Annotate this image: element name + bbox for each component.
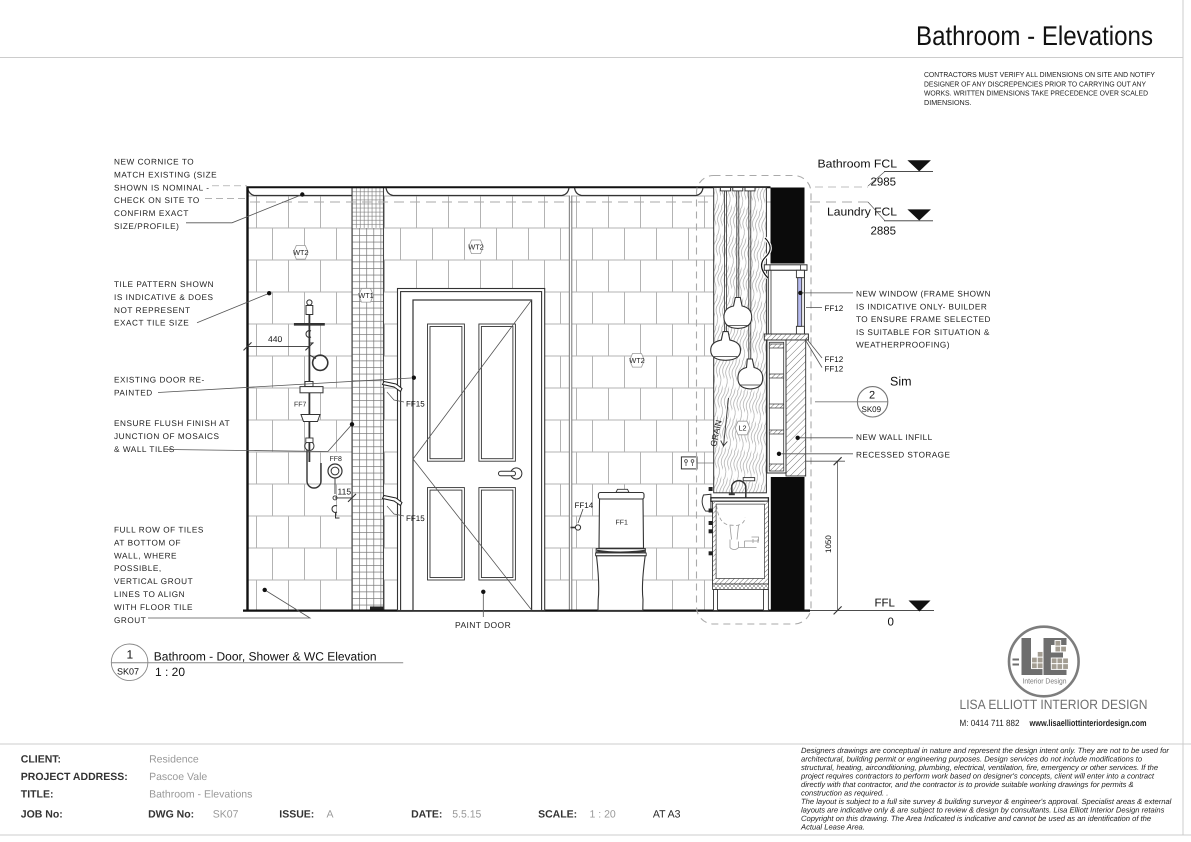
svg-text:Bathroom FCL: Bathroom FCL [818,159,898,171]
svg-text:NEW CORNICE TO: NEW CORNICE TO [114,158,194,167]
svg-text:POSSIBLE,: POSSIBLE, [114,564,162,573]
svg-text:PAINTED: PAINTED [114,388,153,397]
svg-text:Actual Lease Area.: Actual Lease Area. [800,823,865,832]
svg-text:www.lisaelliottinteriordesign.: www.lisaelliottinteriordesign.com [1029,718,1147,728]
svg-text:RECESSED STORAGE: RECESSED STORAGE [856,451,950,460]
svg-text:DIMENSIONS.: DIMENSIONS. [924,98,972,107]
svg-text:ISSUE:: ISSUE: [279,809,314,821]
svg-text:GROUT: GROUT [114,616,146,625]
svg-text:1: 1 [127,648,134,662]
svg-text:1050: 1050 [824,535,833,553]
svg-text:TITLE:: TITLE: [21,789,54,801]
svg-text:2: 2 [869,390,875,402]
svg-text:M: 0414 711 882: M: 0414 711 882 [960,718,1020,728]
svg-text:JOB No:: JOB No: [21,809,63,821]
svg-text:& WALL TILES: & WALL TILES [114,445,175,454]
svg-text:FULL ROW OF TILES: FULL ROW OF TILES [114,526,204,535]
svg-text:FFL: FFL [875,598,896,610]
svg-text:FF14: FF14 [575,501,594,510]
svg-text:Pascoe Vale: Pascoe Vale [149,771,207,783]
svg-text:FF12: FF12 [825,355,844,364]
svg-text:IS INDICATIVE & DOES: IS INDICATIVE & DOES [114,293,214,302]
svg-text:WALL, WHERE: WALL, WHERE [114,551,177,560]
svg-text:1 : 20: 1 : 20 [590,809,616,821]
svg-text:PROJECT ADDRESS:: PROJECT ADDRESS: [21,771,128,783]
svg-text:NEW WINDOW (FRAME SHOWN: NEW WINDOW (FRAME SHOWN [856,290,991,299]
svg-text:IS SUITABLE FOR SITUATION &: IS SUITABLE FOR SITUATION & [856,328,990,337]
svg-text:IS INDICATIVE ONLY- BUILDER: IS INDICATIVE ONLY- BUILDER [856,302,987,311]
svg-text:Interior Design: Interior Design [1023,677,1067,686]
svg-text:EXACT TILE SIZE: EXACT TILE SIZE [114,319,189,328]
svg-text:JUNCTION OF MOSAICS: JUNCTION OF MOSAICS [114,432,220,441]
svg-text:SHOWN IS NOMINAL -: SHOWN IS NOMINAL - [114,183,210,192]
svg-text:FF8: FF8 [330,456,343,463]
svg-text:NEW WALL INFILL: NEW WALL INFILL [856,433,933,442]
svg-text:WITH FLOOR TILE: WITH FLOOR TILE [114,603,193,612]
svg-text:LINES TO ALIGN: LINES TO ALIGN [114,590,185,599]
svg-text:2885: 2885 [871,226,897,238]
svg-text:DESIGNER OF ANY DISCREPENCIES: DESIGNER OF ANY DISCREPENCIES PRIOR TO C… [924,79,1146,88]
svg-text:FF12: FF12 [825,364,844,373]
svg-text:A: A [327,809,334,821]
svg-text:ENSURE FLUSH FINISH AT: ENSURE FLUSH FINISH AT [114,419,230,428]
svg-text:VERTICAL GROUT: VERTICAL GROUT [114,577,193,586]
svg-text:EXISTING DOOR RE-: EXISTING DOOR RE- [114,376,205,385]
svg-text:FF15: FF15 [406,514,425,523]
svg-text:MATCH EXISTING (SIZE: MATCH EXISTING (SIZE [114,170,217,179]
svg-text:LISA ELLIOTT INTERIOR DESIGN: LISA ELLIOTT INTERIOR DESIGN [960,697,1148,712]
svg-text:WT1: WT1 [358,291,373,300]
svg-text:AT BOTTOM OF: AT BOTTOM OF [114,538,181,547]
svg-text:5.5.15: 5.5.15 [452,809,481,821]
svg-text:DWG No:: DWG No: [148,809,194,821]
svg-text:WORKS. WRITTEN DIMENSIONS TAK: WORKS. WRITTEN DIMENSIONS TAKE PRECEDENC… [924,89,1148,98]
svg-text:SK09: SK09 [862,405,882,414]
svg-text:Laundry FCL: Laundry FCL [827,207,898,219]
svg-text:SCALE:: SCALE: [538,809,577,821]
svg-text:TILE PATTERN SHOWN: TILE PATTERN SHOWN [114,280,214,289]
svg-text:SIZE/PROFILE): SIZE/PROFILE) [114,222,179,231]
svg-text:NOT REPRESENT: NOT REPRESENT [114,306,191,315]
svg-text:FF7: FF7 [294,402,307,409]
svg-text:1 : 20: 1 : 20 [155,665,185,679]
svg-text:2985: 2985 [871,177,897,189]
svg-text:PAINT DOOR: PAINT DOOR [455,620,511,630]
svg-text:440: 440 [268,334,282,344]
svg-text:Residence: Residence [149,754,199,766]
svg-text:WT2: WT2 [629,356,644,365]
svg-text:115: 115 [338,487,352,497]
svg-text:WEATHERPROOFING): WEATHERPROOFING) [856,341,950,350]
svg-text:FF15: FF15 [406,400,425,409]
svg-text:CLIENT:: CLIENT: [21,754,61,766]
svg-text:FF12: FF12 [825,304,844,313]
svg-text:CHECK ON SITE TO: CHECK ON SITE TO [114,196,200,205]
svg-text:WT2: WT2 [293,248,308,257]
svg-text:SK07: SK07 [213,809,239,821]
svg-text:DATE:: DATE: [411,809,442,821]
svg-text:Sim: Sim [890,375,912,389]
svg-text:0: 0 [888,617,894,629]
svg-text:SK07: SK07 [117,667,139,677]
svg-text:TO ENSURE FRAME SELECTED: TO ENSURE FRAME SELECTED [856,315,991,324]
svg-text:FF1: FF1 [616,520,629,527]
svg-text:Bathroom - Elevations: Bathroom - Elevations [149,789,252,801]
svg-text:AT A3: AT A3 [653,809,681,821]
svg-text:Bathroom - Door, Shower & WC E: Bathroom - Door, Shower & WC Elevation [154,650,377,664]
svg-text:CONFIRM EXACT: CONFIRM EXACT [114,209,189,218]
svg-text:Bathroom - Elevations: Bathroom - Elevations [916,21,1153,51]
svg-text:CONTRACTORS MUST VERIFY ALL DI: CONTRACTORS MUST VERIFY ALL DIMENSIONS O… [924,70,1155,79]
svg-text:L2: L2 [739,424,747,433]
svg-text:WT2: WT2 [468,242,483,251]
